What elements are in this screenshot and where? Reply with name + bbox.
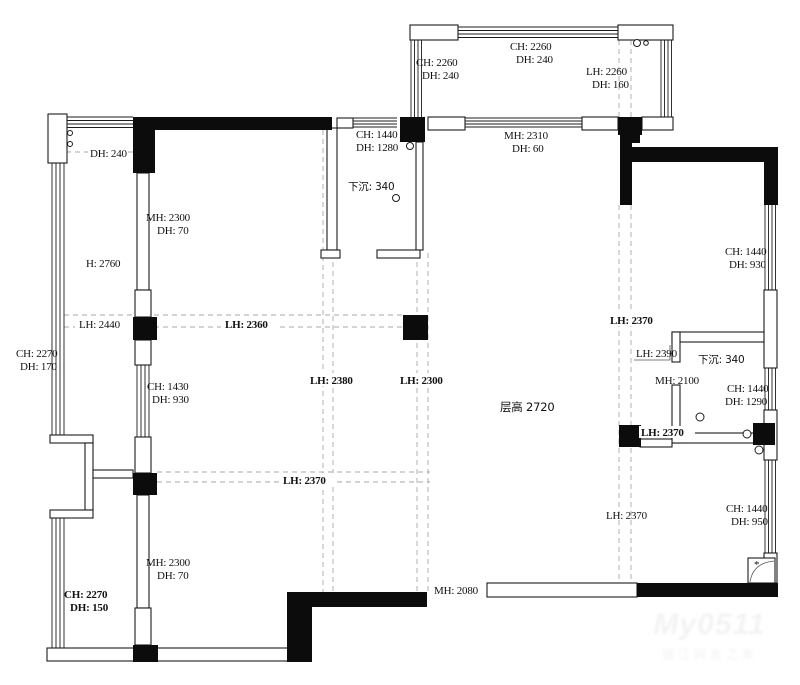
label-lh2370-mid: LH: 2370: [283, 475, 326, 487]
label-dh70-top: DH: 70: [157, 225, 189, 237]
label-dh930-mid: DH: 930: [152, 394, 189, 406]
label-mh2300-top: MH: 2300: [146, 212, 191, 224]
label-ch2270-left: CH: 2270: [16, 348, 58, 360]
label-lh2360: LH: 2360: [225, 319, 268, 331]
label-ch2260-balcony-left: CH: 2260: [416, 57, 458, 69]
label-corner-star: *: [754, 559, 759, 571]
label-dh1290-bath2: DH: 1290: [725, 396, 768, 408]
floor-plan-page: DH: 240 MH: 2300 DH: 70 H: 2760 LH: 2440…: [0, 0, 800, 685]
label-mh2080: MH: 2080: [434, 585, 479, 597]
label-dh1280-bath1: DH: 1280: [356, 142, 399, 154]
label-dh950-right-lower: DH: 950: [731, 516, 768, 528]
label-ch2260-balcony-top: CH: 2260: [510, 41, 552, 53]
label-ch2270-bottom: CH: 2270: [64, 589, 108, 601]
label-dh60: DH: 60: [512, 143, 544, 155]
label-h2760: H: 2760: [86, 258, 121, 270]
label-dh170-left: DH: 170: [20, 361, 57, 373]
label-mh2310: MH: 2310: [504, 130, 549, 142]
label-dh150-bottom: DH: 150: [70, 602, 109, 614]
label-sunken-bath1: 下沉: 340: [348, 180, 395, 193]
label-dh70-bottom: DH: 70: [157, 570, 189, 582]
label-ch1430-mid: CH: 1430: [147, 381, 189, 393]
label-lh2300: LH: 2300: [400, 375, 443, 387]
label-sunken-bath2: 下沉: 340: [698, 353, 745, 366]
label-floor-height: 层高 2720: [500, 400, 555, 414]
label-mh2300-bottom: MH: 2300: [146, 557, 191, 569]
label-mh2100: MH: 2100: [655, 375, 700, 387]
floor-plan-drawing: DH: 240 MH: 2300 DH: 70 H: 2760 LH: 2440…: [0, 0, 800, 685]
label-dh240-balcony-top: DH: 240: [516, 54, 553, 66]
label-lh2390-right: LH: 2390: [636, 348, 678, 360]
label-lh2370-right-lower: LH: 2370: [606, 510, 648, 522]
label-dh240-left: DH: 240: [90, 148, 127, 160]
label-dh160-balcony: DH: 160: [592, 79, 629, 91]
label-lh2440: LH: 2440: [79, 319, 121, 331]
label-dh930-right-upper: DH: 930: [729, 259, 766, 271]
label-lh2260-balcony: LH: 2260: [586, 66, 628, 78]
label-lh2370-right-upper: LH: 2370: [610, 315, 653, 327]
label-backgrounds: [75, 313, 695, 596]
black-walls-and-columns: [133, 117, 778, 662]
label-ch1440-right-upper: CH: 1440: [725, 246, 767, 258]
label-ch1440-right-lower: CH: 1440: [726, 503, 768, 515]
label-dh240-balcony-left: DH: 240: [422, 70, 459, 82]
label-ch1440-bath1: CH: 1440: [356, 129, 398, 141]
label-lh2370-bath2: LH: 2370: [641, 427, 684, 439]
label-ch1440-bath2: CH: 1440: [727, 383, 769, 395]
label-lh2380: LH: 2380: [310, 375, 353, 387]
